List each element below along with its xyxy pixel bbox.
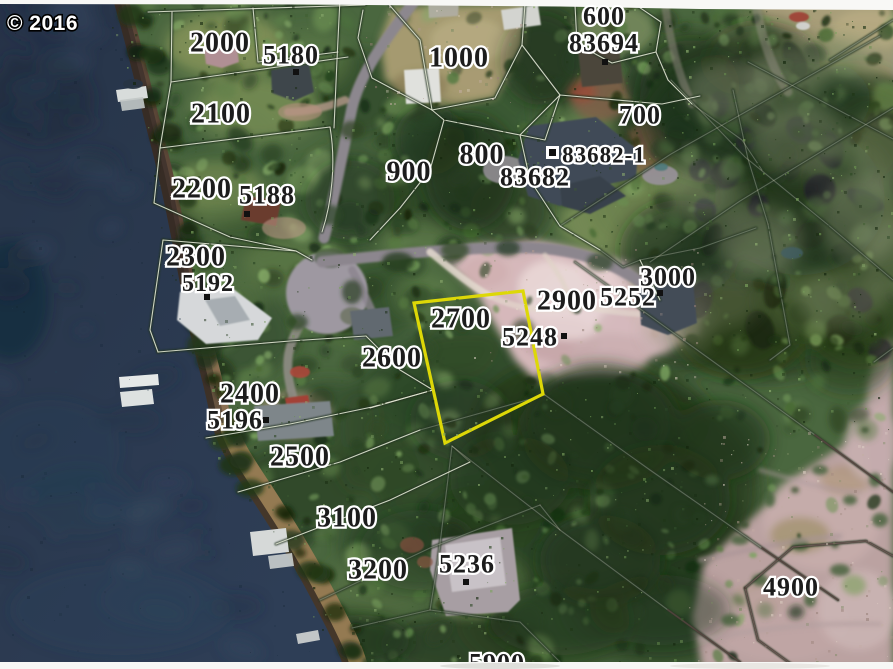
svg-text:2000: 2000	[190, 28, 250, 59]
svg-text:2300: 2300	[166, 242, 226, 273]
svg-text:2900: 2900	[537, 286, 597, 317]
svg-text:5192: 5192	[182, 271, 234, 297]
svg-text:900: 900	[387, 157, 432, 188]
svg-text:5196: 5196	[207, 406, 263, 435]
svg-text:2100: 2100	[191, 99, 251, 130]
svg-text:2700: 2700	[431, 304, 491, 335]
svg-text:3200: 3200	[348, 555, 408, 586]
svg-text:1000: 1000	[429, 43, 489, 74]
svg-text:800: 800	[460, 140, 505, 171]
svg-text:3100: 3100	[317, 503, 377, 534]
svg-text:3000: 3000	[640, 263, 696, 292]
svg-text:2200: 2200	[172, 174, 232, 205]
svg-text:5188: 5188	[239, 181, 295, 210]
svg-text:© 2016: © 2016	[7, 12, 78, 35]
svg-text:700: 700	[619, 101, 661, 130]
svg-text:83682: 83682	[500, 163, 570, 192]
svg-text:600: 600	[583, 2, 625, 31]
svg-text:83694: 83694	[569, 29, 639, 58]
svg-text:2500: 2500	[270, 442, 330, 473]
svg-text:2600: 2600	[362, 343, 422, 374]
svg-text:5180: 5180	[263, 41, 319, 70]
svg-text:5248: 5248	[502, 323, 558, 352]
svg-text:4900: 4900	[763, 573, 819, 602]
svg-text:83682-1: 83682-1	[562, 143, 646, 168]
svg-text:5236: 5236	[439, 550, 495, 579]
